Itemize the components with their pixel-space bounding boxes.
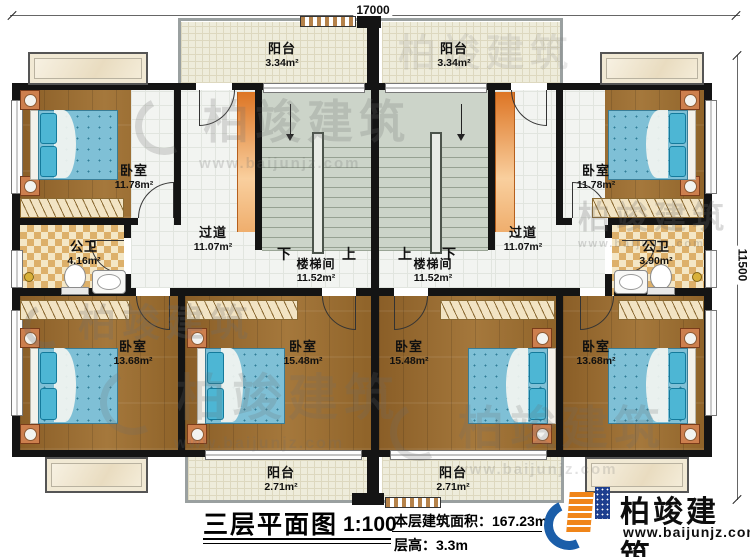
floor-area-text: 本层建筑面积：167.23m² — [394, 511, 552, 531]
window — [11, 250, 23, 288]
room-label-bedroom-tl: 卧室11.78m² — [115, 164, 154, 191]
room-label-bedroom-b4: 卧室13.68m² — [576, 340, 615, 367]
room-label-hall-r: 过道11.07m² — [504, 226, 543, 253]
nightstand — [20, 90, 40, 110]
room-label-bedroom-tr: 卧室11.78m² — [577, 164, 616, 191]
wall — [428, 288, 580, 296]
door-leaf — [572, 182, 573, 218]
window — [705, 250, 717, 288]
nightstand — [680, 90, 700, 110]
room-label-stair-l: 楼梯间11.52m² — [296, 258, 335, 284]
stair-rail-right — [430, 132, 442, 254]
wall-cap — [357, 16, 381, 28]
watermark: 柏竣建筑 www.baijunjz.com — [100, 358, 400, 453]
bed-pillow — [40, 146, 57, 177]
stair-up-label-left: 上 — [342, 244, 356, 264]
plan-title: 三层平面图 — [203, 505, 338, 541]
logo-building2-icon — [595, 487, 610, 519]
wall-cap — [352, 493, 384, 505]
title-underline — [203, 543, 391, 544]
sink-basin — [619, 274, 643, 290]
door-leaf — [580, 296, 581, 330]
wall — [124, 225, 131, 238]
title-underline — [203, 538, 391, 540]
nightstand — [680, 328, 700, 348]
lamp-icon — [24, 94, 37, 107]
dimension-height-label: 11500 — [735, 246, 749, 285]
bed-pillow — [40, 352, 57, 384]
room-label-balcony-br: 阳台2.71m² — [436, 466, 469, 493]
accent-wall-right — [495, 92, 515, 232]
floor-plan-canvas: 17000 11500 — [0, 0, 750, 557]
stair-arrow-head — [457, 134, 465, 141]
room-label-bath-r: 公卫3.90m² — [639, 240, 672, 267]
room-label-bedroom-b3: 卧室15.48m² — [389, 340, 428, 367]
wardrobe — [20, 198, 124, 218]
bed-pillow — [669, 352, 686, 384]
wall — [488, 90, 495, 250]
wardrobe — [618, 300, 704, 320]
shower-icon — [24, 272, 34, 282]
watermark-url: www.baijunjz.com — [199, 155, 411, 172]
lamp-icon — [684, 332, 697, 345]
door-leaf — [173, 182, 174, 218]
dimension-width-label: 17000 — [353, 3, 392, 17]
room-label-balcony-bl: 阳台2.71m² — [264, 466, 297, 493]
room-label-bedroom-b2: 卧室15.48m² — [283, 340, 322, 367]
room-label-stair-r: 楼梯间11.52m² — [413, 258, 452, 284]
nightstand — [532, 328, 552, 348]
room-label-hall-l: 过道11.07m² — [194, 226, 233, 253]
wall — [12, 218, 138, 225]
room-label-balcony-tl: 阳台3.34m² — [265, 42, 298, 69]
lamp-icon — [24, 180, 37, 193]
bed-pillow — [40, 388, 57, 420]
bed-blanket — [646, 110, 668, 178]
bed-pillow — [669, 146, 686, 177]
lamp-icon — [536, 332, 549, 345]
room-label-balcony-tr: 阳台3.34m² — [437, 42, 470, 69]
stair-down-label-left: 下 — [277, 244, 291, 264]
wall — [556, 83, 563, 225]
door-leaf — [394, 296, 395, 330]
watermark: 柏竣建筑 — [398, 22, 598, 77]
bed-pillow — [669, 113, 686, 144]
room-label-bedroom-b1: 卧室13.68m² — [113, 340, 152, 367]
louver-strip — [385, 497, 441, 508]
shower-icon — [692, 272, 702, 282]
louver-strip — [300, 16, 356, 27]
door-leaf — [546, 90, 547, 126]
bed-pillow — [529, 352, 546, 384]
railing — [185, 457, 188, 503]
plan-scale: 1:100 — [343, 513, 397, 537]
door-leaf — [355, 296, 356, 330]
sink-basin — [97, 274, 121, 290]
floor-height-text: 层高：3.3m — [394, 535, 468, 555]
bay-window — [600, 52, 704, 85]
logo-name: 柏竣建筑 — [620, 487, 750, 557]
window — [705, 100, 717, 194]
stair-arrow — [461, 104, 462, 136]
bay-window — [28, 52, 148, 85]
watermark-logo-icon — [127, 89, 200, 162]
wall — [605, 274, 612, 296]
toilet-tank — [647, 287, 675, 295]
bed-pillow — [40, 113, 57, 144]
lamp-icon — [684, 94, 697, 107]
nightstand — [20, 424, 40, 444]
lamp-icon — [24, 428, 37, 441]
room-label-bath-l: 公卫4.16m² — [67, 240, 100, 267]
wardrobe — [440, 300, 555, 320]
watermark: 柏竣建筑 www.baijunjz.com — [135, 86, 411, 172]
railing — [178, 18, 181, 83]
stair-up-label-right: 上 — [398, 244, 412, 264]
bay-window — [45, 457, 148, 493]
logo-building-icon — [566, 492, 593, 532]
watermark-text: 柏竣建筑 — [203, 96, 411, 148]
logo-url: www.baijunjz.com — [623, 524, 750, 540]
window — [11, 310, 23, 416]
meta-divider — [392, 531, 542, 532]
